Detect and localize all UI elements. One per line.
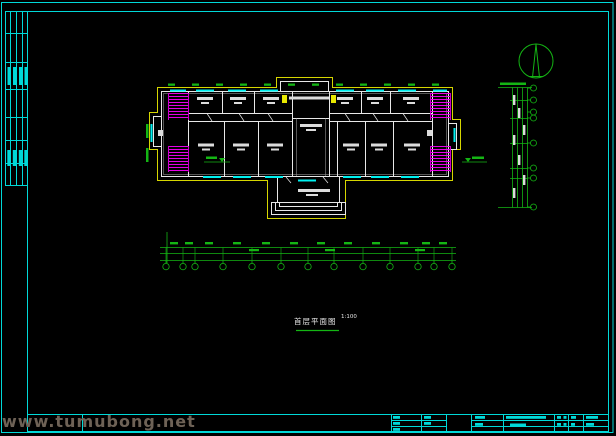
dim-text-blob [249,249,259,251]
axis-bubble [531,85,537,91]
dim-text-blob [205,242,213,244]
title-block-text-blob [424,416,431,419]
hall-label-blob [300,124,322,127]
dim-text-blob [216,84,223,86]
axis-bubble [278,263,284,269]
plan-dimension-text-top [168,84,439,86]
hall-area-blob [306,129,316,131]
dim-text-blob [185,242,193,244]
dim-text-blob [288,84,295,86]
title-block-text-blob [424,422,431,425]
dim-text-blob [372,242,380,244]
room-label-blob [267,144,283,147]
dim-text-blob [290,242,298,244]
axis-bubble [180,263,186,269]
title-block-text-blob [393,416,400,419]
room-label-blob [371,144,387,147]
watermark-url: www.tumubong.net [2,412,196,431]
axis-bubble [531,115,537,121]
dim-text-blob [312,84,319,86]
north-arrow-icon [519,44,553,78]
dim-text-blob [400,242,408,244]
title-block-text-blob [564,416,567,419]
dim-text-blob [513,95,515,105]
room-area-blob [234,102,242,104]
axis-bubble [531,140,537,146]
dim-text-blob [523,175,525,185]
dim-text-blob [360,84,367,86]
room-area-blob [267,102,275,104]
axis-bubble [249,263,255,269]
dim-text-blob [168,84,175,86]
dim-text-blob [518,108,520,118]
room-label-blob [263,97,279,100]
table-text-blob [25,67,28,85]
room-area-blob [341,102,349,104]
dimension-text-bottom [170,242,447,251]
title-block-text [393,416,598,431]
axis-bubble [449,263,455,269]
plan-walls [154,82,457,215]
room-area-blob [375,149,383,151]
dim-text-blob [523,125,525,135]
axis-bubble [192,263,198,269]
title-block-text-blob [586,416,598,419]
dim-text-blob [336,84,343,86]
stair-hatch [430,146,451,172]
title-block-text-blob [571,423,575,426]
room-label-blob [230,97,246,100]
dim-text-blob [408,84,415,86]
stair-hatch [168,93,189,120]
room-area-blob [408,149,416,151]
room-label-blob [404,144,420,147]
room-area-blob [202,149,210,151]
dim-text-blob [513,188,515,198]
plan-door-panels [158,130,432,136]
table-text-blob [19,150,22,166]
plan-scale: 1:100 [341,314,357,320]
dim-text-blob [233,242,241,244]
room-label-blob [367,97,383,100]
cad-drawing [0,0,616,436]
dim-text-blob [439,242,447,244]
table-text-blob [24,150,27,166]
axis-bubble [431,263,437,269]
porch-label-blob [298,189,330,192]
room-area-blob [201,102,209,104]
dim-text-blob [240,84,247,86]
axis-bubbles-bottom [163,248,455,270]
stair-hatch [168,146,189,172]
axis-bubble [531,204,537,210]
axis-bubble [387,263,393,269]
dim-text-blob [513,135,515,145]
title-block-text-blob [475,423,483,426]
title-block-text-blob [564,423,567,426]
dim-text-blob [262,242,270,244]
axis-bubble [305,263,311,269]
table-text-blob [7,150,10,166]
table-text-blob [13,150,16,166]
room-area-blob [237,149,245,151]
room-label-blob [197,97,213,100]
table-text-blob [8,67,11,85]
title-block-text-blob [475,416,485,419]
room-area-blob [347,149,355,151]
dim-text-blob [317,242,325,244]
plan-title: 首层平面图 [294,316,337,327]
room-area-blob [271,149,279,151]
title-block-text-blob [393,428,400,431]
title-block-text-blob [506,416,546,419]
hall-label-blob [289,97,329,100]
table-text-blob [13,67,16,85]
axis-bubble [531,165,537,171]
axis-bubble [220,263,226,269]
room-label-blob [198,144,214,147]
porch-area-blob [306,194,318,196]
axis-bubbles-right [528,85,537,210]
dimension-text-right [513,95,525,198]
dim-text-blob [422,242,430,244]
axis-bubble [415,263,421,269]
dim-text-blob [518,155,520,165]
dim-text-blob [344,242,352,244]
title-block-text-blob [557,416,561,419]
room-label-blob [403,97,419,100]
room-area-blob [371,102,379,104]
dim-text-blob [325,249,335,251]
axis-bubble [531,97,537,103]
axis-bubble [331,263,337,269]
dim-text-blob [192,84,199,86]
room-label-blob [233,144,249,147]
axis-bubble [531,175,537,181]
table-text-blob [19,67,22,85]
axis-bubble [163,263,169,269]
axis-bubble [360,263,366,269]
sheet-frame [2,3,614,433]
title-block-text-blob [571,416,576,419]
dim-text-blob [432,84,439,86]
room-label-blob [343,144,359,147]
title-block-text-blob [557,423,561,426]
dim-text-blob [415,249,425,251]
room-label-blob [337,97,353,100]
title-block-text-blob [393,422,400,425]
title-block-text-blob [510,424,526,427]
stair-hatch [430,93,451,120]
dim-text-blob [264,84,271,86]
title-block-text-blob [586,423,594,426]
axis-bubble [531,109,537,115]
cad-sheet: 土木帮 [0,0,616,436]
dim-text-blob [170,242,178,244]
dim-text-blob [384,84,391,86]
room-area-blob [407,102,415,104]
